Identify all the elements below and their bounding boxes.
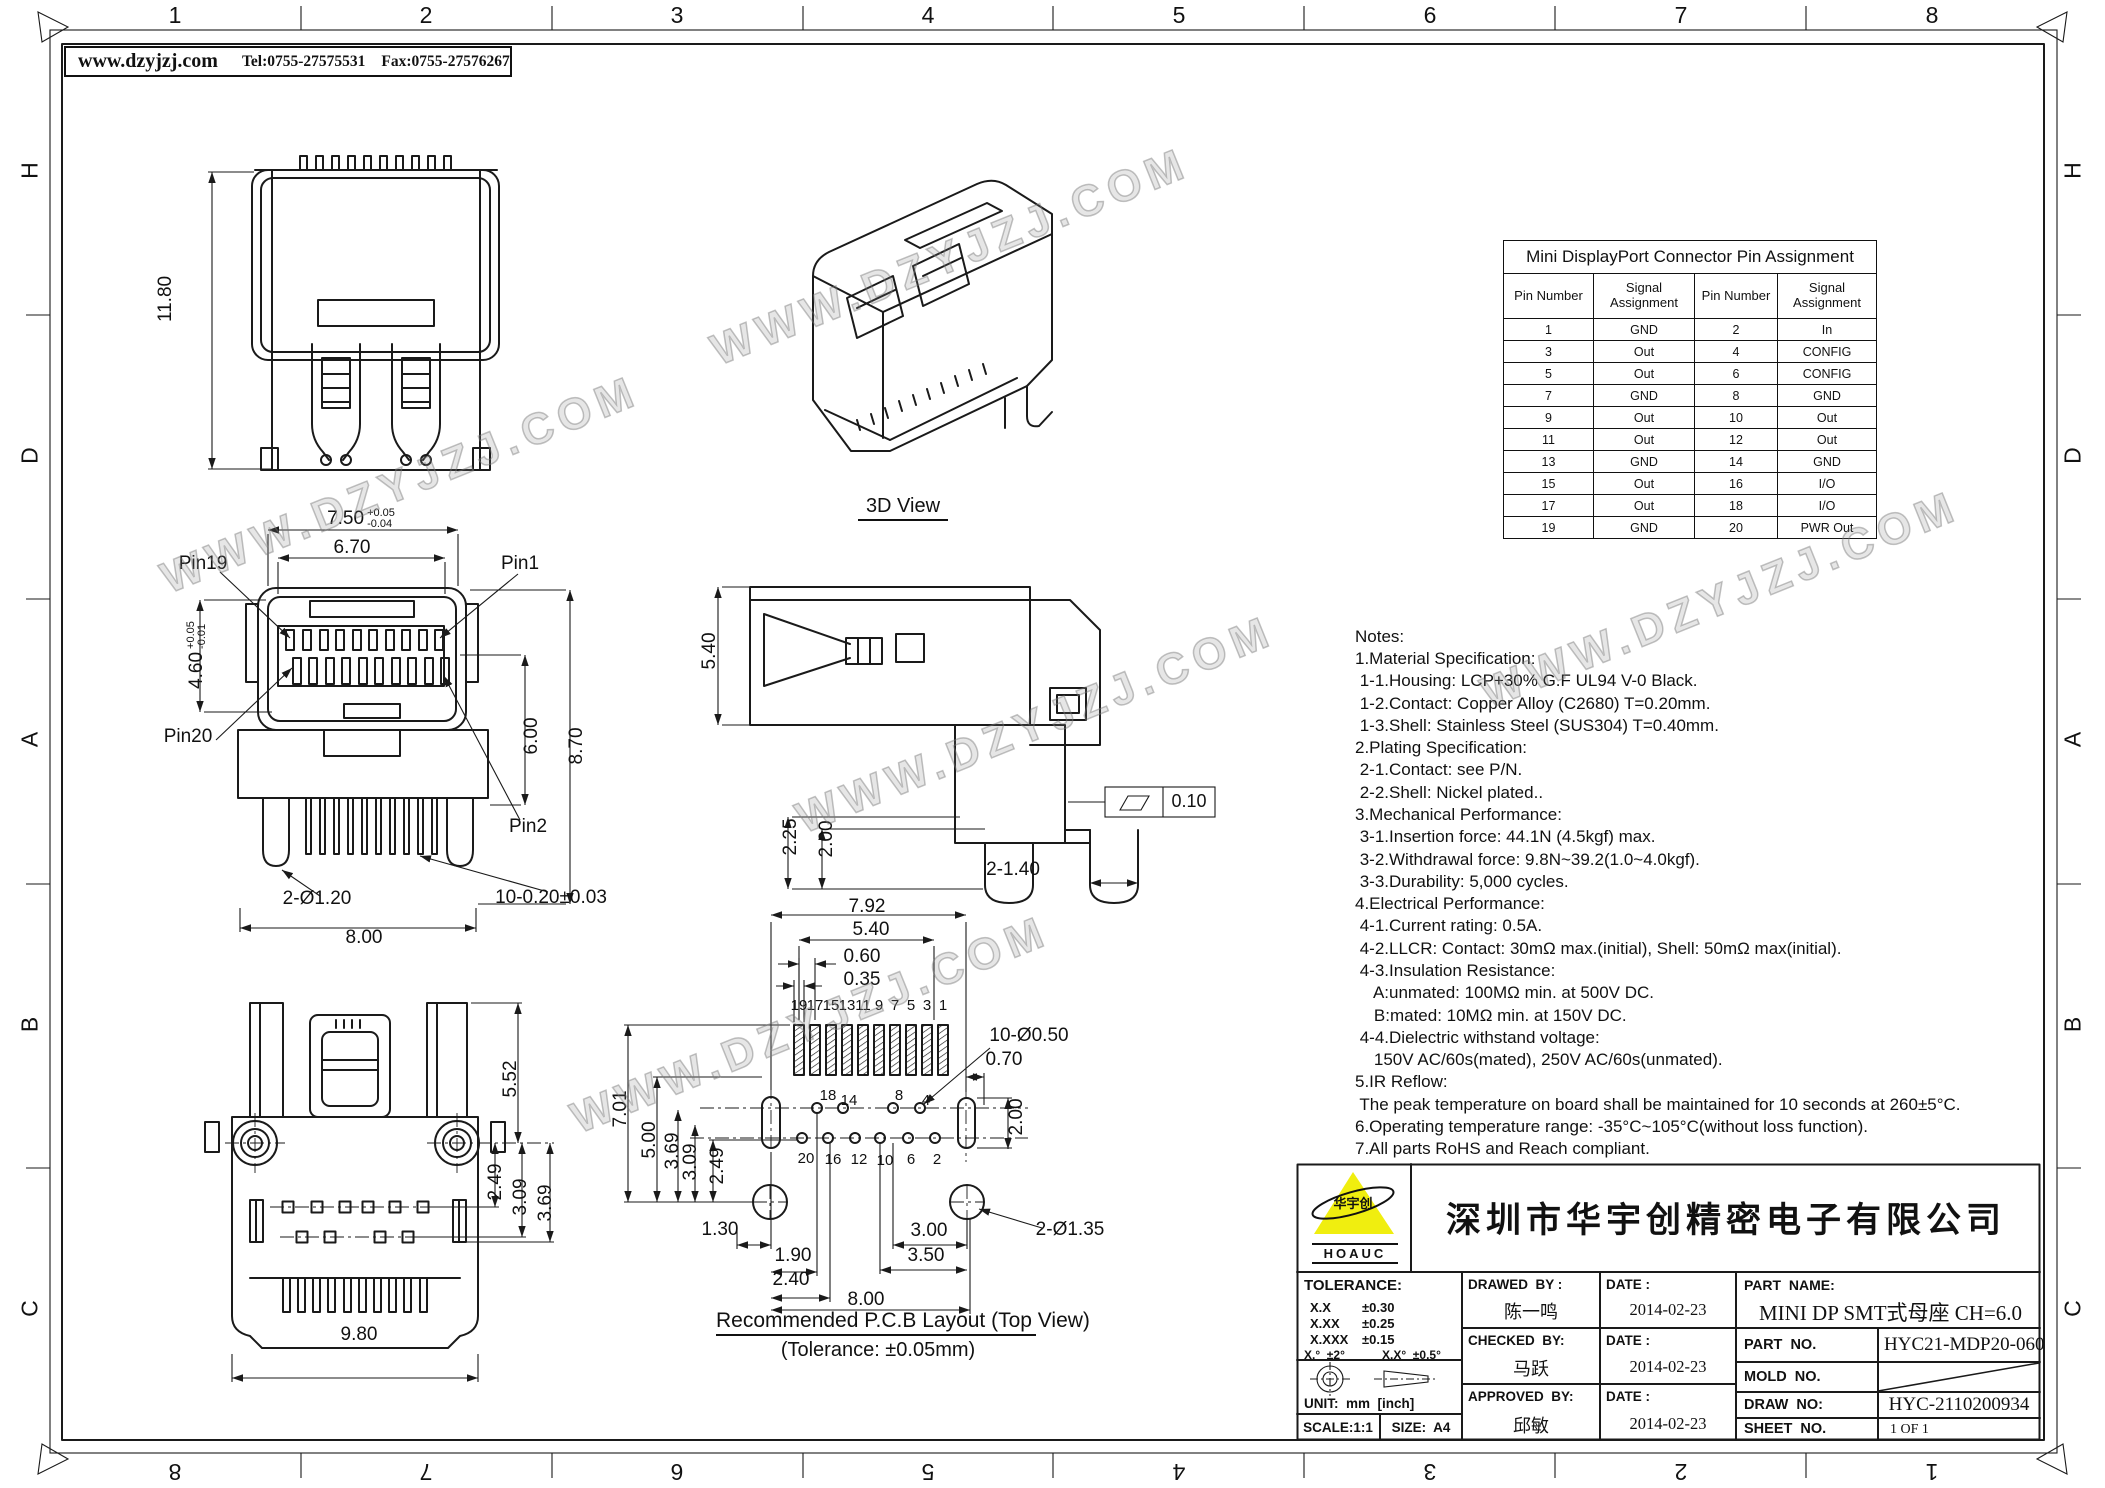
note-line: 3-3.Durability: 5,000 cycles. — [1355, 872, 1569, 892]
tol-angle: X.° ±2° — [1304, 1348, 1345, 1362]
sheet-no-label: SHEET NO. — [1744, 1421, 1826, 1437]
dim-side-feet: 2-1.40 — [968, 860, 1058, 880]
pcb-hole-number: 20 — [796, 1151, 816, 1167]
pcb-caption: Recommended P.C.B Layout (Top View) — [716, 1310, 1036, 1336]
drawed-by-name: 陈一鸣 — [1481, 1298, 1581, 1324]
cell: Out — [1594, 407, 1695, 429]
logo-cn-text: 华宇创 — [1333, 1196, 1372, 1211]
dim-pcb-h-a: 5.00 — [640, 1100, 660, 1180]
note-line: 3-2.Withdrawal force: 9.8N~39.2(1.0~4.0k… — [1355, 850, 1700, 870]
grid-col-label: 6 — [662, 1458, 692, 1485]
note-line: B:mated: 10MΩ min. at 150V DC. — [1355, 1006, 1627, 1026]
part-name-label: PART NAME: — [1744, 1277, 1835, 1293]
cell: GND — [1594, 319, 1695, 341]
cell: CONFIG — [1778, 363, 1877, 385]
note-line: 4.Electrical Performance: — [1355, 894, 1545, 914]
pin-table-header: Pin Number — [1695, 274, 1778, 319]
dim-front-body-height: 8.70 — [567, 706, 587, 786]
dim-bottom-top-height: 5.52 — [501, 1039, 521, 1119]
fax-text: Fax:0755-27576267 — [381, 53, 509, 71]
grid-row-label: C — [2060, 1294, 2087, 1324]
draw-no-value: HYC-2110200934 — [1884, 1394, 2034, 1416]
cell: 1 — [1504, 319, 1594, 341]
pin20-label: Pin20 — [158, 727, 218, 747]
tel-text: Tel:0755-27575531 — [242, 53, 365, 71]
dim-bottom-width: 9.80 — [329, 1325, 389, 1345]
pcb-hole-number: 12 — [849, 1152, 869, 1168]
note-line: 4-4.Dielectric withstand voltage: — [1355, 1028, 1600, 1048]
pin-table-header: Signal Assignment — [1778, 274, 1877, 319]
cell: Out — [1594, 341, 1695, 363]
dim-bottom-p1: 2.49 — [486, 1142, 506, 1222]
cell: 17 — [1504, 495, 1594, 517]
cell: 13 — [1504, 451, 1594, 473]
dim-pcb-b1: 1.30 — [690, 1220, 750, 1240]
iso-view-drawing — [755, 148, 1100, 493]
grid-col-label: 8 — [1917, 2, 1947, 29]
drawed-date: 2014-02-23 — [1608, 1300, 1728, 1320]
note-line: 1-3.Shell: Stainless Steel (SUS304) T=0.… — [1355, 716, 1719, 736]
tol-label: X.XX — [1310, 1316, 1340, 1331]
contact-info-box: www.dzyjzj.com Tel:0755-27575531 Fax:075… — [64, 46, 512, 77]
dim-front-width-outer: 7.50+0.05-0.04 — [306, 508, 416, 530]
dim-pcb-h-total: 7.01 — [611, 1069, 631, 1149]
cell: 19 — [1504, 517, 1594, 539]
note-line: 4-3.Insulation Resistance: — [1355, 961, 1555, 981]
cell: Out — [1594, 473, 1695, 495]
draw-no-label: DRAW NO: — [1744, 1397, 1823, 1413]
part-no-value: HYC21-MDP20-060 — [1884, 1334, 2034, 1356]
dim-side-leg-a: 2.25 — [781, 797, 801, 877]
note-line: 2-1.Contact: see P/N. — [1355, 760, 1522, 780]
scale-label: SCALE:1:1 — [1300, 1420, 1376, 1435]
dim-pcb-holes: 10-Ø0.50 — [969, 1026, 1089, 1046]
note-line: 150V AC/60s(mated), 250V AC/60s(unmated)… — [1355, 1050, 1723, 1070]
dim-pcb-pitch: 0.60 — [832, 947, 892, 967]
table-row: 11Out12Out — [1504, 429, 1877, 451]
tolerance-title: TOLERANCE: — [1304, 1277, 1402, 1294]
note-line: 2-2.Shell: Nickel plated.. — [1355, 783, 1543, 803]
dim-pcb-pads-width: 7.92 — [837, 897, 897, 917]
rear-view-drawing — [150, 92, 570, 492]
pin-table-title: Mini DisplayPort Connector Pin Assignmen… — [1504, 241, 1877, 274]
drawed-by-label: DRAWED BY : — [1468, 1277, 1562, 1292]
pin-table-header: Pin Number — [1504, 274, 1594, 319]
table-row: 13GND14GND — [1504, 451, 1877, 473]
website-text: www.dzyjzj.com — [78, 50, 218, 73]
cell: GND — [1594, 385, 1695, 407]
dim-pcb-inner-width: 5.40 — [841, 920, 901, 940]
cell: 3 — [1504, 341, 1594, 363]
pin19-label: Pin19 — [173, 554, 233, 574]
grid-col-label: 1 — [160, 2, 190, 29]
pcb-hole-number: 10 — [875, 1153, 895, 1169]
dim-pcb-pad-width: 0.35 — [832, 970, 892, 990]
pin-table-header: Signal Assignment — [1594, 274, 1695, 319]
table-row: 7GND8GND — [1504, 385, 1877, 407]
note-line: 1.Material Specification: — [1355, 649, 1535, 669]
grid-col-label: 8 — [160, 1458, 190, 1485]
table-row: 5Out6CONFIG — [1504, 363, 1877, 385]
tol-angle: X.X° ±0.5° — [1382, 1348, 1441, 1362]
cell: 6 — [1695, 363, 1778, 385]
dim-side-height: 5.40 — [700, 611, 720, 691]
company-logo: 华宇创 — [1306, 1170, 1401, 1242]
dim-pcb-slot-height: 2.00 — [1007, 1077, 1027, 1157]
table-row: 3Out4CONFIG — [1504, 341, 1877, 363]
cell: Out — [1594, 363, 1695, 385]
grid-col-label: 4 — [913, 2, 943, 29]
note-line: 1-1.Housing: LCP+30% G.F UL94 V-0 Black. — [1355, 671, 1698, 691]
cell: Out — [1594, 495, 1695, 517]
table-row: 19GND20PWR Out — [1504, 517, 1877, 539]
grid-col-label: 3 — [1415, 1458, 1445, 1485]
cell: 11 — [1504, 429, 1594, 451]
grid-col-label: 7 — [411, 1458, 441, 1485]
table-row: 17Out18I/O — [1504, 495, 1877, 517]
dim-pcb-b2: 1.90 — [763, 1246, 823, 1266]
note-line: 7.All parts RoHS and Reach compliant. — [1355, 1139, 1650, 1159]
grid-row-label: A — [17, 725, 44, 755]
drawing-sheet: 1 2 3 4 5 6 7 8 8 7 6 5 4 3 2 1 H D A B … — [0, 0, 2105, 1488]
cell: 5 — [1504, 363, 1594, 385]
dim-pcb-b6: 8.00 — [836, 1290, 896, 1310]
cell: I/O — [1778, 473, 1877, 495]
dim-bottom-p3: 3.69 — [536, 1163, 556, 1243]
cell: Out — [1594, 429, 1695, 451]
cell: I/O — [1778, 495, 1877, 517]
dim-front-width-inner: 6.70 — [322, 538, 382, 558]
cell: 4 — [1695, 341, 1778, 363]
note-line: 4-1.Current rating: 0.5A. — [1355, 916, 1542, 936]
date-label: DATE : — [1606, 1389, 1650, 1404]
side-view-drawing — [700, 540, 1220, 910]
pcb-hole-number: 14 — [839, 1093, 859, 1109]
cell: CONFIG — [1778, 341, 1877, 363]
dim-pcb-h-c: 3.09 — [681, 1122, 701, 1202]
table-row: 9Out10Out — [1504, 407, 1877, 429]
tol-label: X.X — [1310, 1300, 1331, 1315]
grid-col-label: 7 — [1666, 2, 1696, 29]
pcb-hole-number: 8 — [889, 1088, 909, 1104]
dim-bottom-p2: 3.09 — [511, 1157, 531, 1237]
flatness-icon — [1120, 796, 1149, 810]
date-label: DATE : — [1606, 1277, 1650, 1292]
cell: 15 — [1504, 473, 1594, 495]
approved-date: 2014-02-23 — [1608, 1414, 1728, 1434]
dim-front-inner-height: 6.00 — [522, 696, 542, 776]
cell: 14 — [1695, 451, 1778, 473]
grid-row-label: H — [17, 156, 44, 186]
grid-row-label: D — [17, 441, 44, 471]
tol-value: ±0.30 — [1362, 1300, 1394, 1315]
pcb-hole-number: 18 — [818, 1088, 838, 1104]
dim-rear-height: 11.80 — [156, 259, 176, 339]
dim-pcb-h-d: 2.49 — [708, 1126, 728, 1206]
dim-side-leg-b: 2.00 — [817, 799, 837, 879]
sheet-no-value: 1 OF 1 — [1890, 1422, 1929, 1438]
grid-row-label: D — [2060, 441, 2087, 471]
pin1-label: Pin1 — [495, 554, 545, 574]
checked-date: 2014-02-23 — [1608, 1357, 1728, 1377]
cell: GND — [1594, 451, 1695, 473]
cell: PWR Out — [1778, 517, 1877, 539]
grid-col-label: 5 — [913, 1458, 943, 1485]
note-line: 2.Plating Specification: — [1355, 738, 1527, 758]
tol-value: ±0.15 — [1362, 1332, 1394, 1347]
grid-col-label: 4 — [1164, 1458, 1194, 1485]
pcb-tolerance-note: (Tolerance: ±0.05mm) — [778, 1340, 978, 1361]
note-line: Notes: — [1355, 627, 1404, 647]
approved-by-label: APPROVED BY: — [1468, 1389, 1574, 1404]
pcb-hole-number: 16 — [823, 1152, 843, 1168]
dim-front-legs: 2-Ø1.20 — [272, 889, 362, 909]
grid-row-label: A — [2060, 725, 2087, 755]
cell: 7 — [1504, 385, 1594, 407]
pin-assignment-table: Mini DisplayPort Connector Pin Assignmen… — [1503, 240, 1877, 539]
tol-label: X.XXX — [1310, 1332, 1348, 1347]
dim-front-pins: 10-0.20±0.03 — [486, 888, 616, 908]
grid-row-label: H — [2060, 156, 2087, 186]
table-row: 15Out16I/O — [1504, 473, 1877, 495]
grid-row-label: B — [17, 1010, 44, 1040]
note-line: 3.Mechanical Performance: — [1355, 805, 1562, 825]
note-line: 4-2.LLCR: Contact: 30mΩ max.(initial), S… — [1355, 939, 1841, 959]
grid-col-label: 5 — [1164, 2, 1194, 29]
cell: 9 — [1504, 407, 1594, 429]
pcb-hole-number: 4 — [916, 1093, 936, 1109]
cell: In — [1778, 319, 1877, 341]
tol-value: ±0.25 — [1362, 1316, 1394, 1331]
cell: Out — [1778, 407, 1877, 429]
dim-pcb-b4: 3.00 — [899, 1221, 959, 1241]
grid-col-label: 3 — [662, 2, 692, 29]
company-name: 深圳市华宇创精密电子有限公司 — [1420, 1192, 2032, 1243]
cell: 12 — [1695, 429, 1778, 451]
dim-front-base-width: 8.00 — [334, 928, 394, 948]
dim-pcb-b3: 2.40 — [761, 1270, 821, 1290]
checked-by-label: CHECKED BY: — [1468, 1333, 1565, 1348]
grid-row-label: B — [2060, 1010, 2087, 1040]
cell: 10 — [1695, 407, 1778, 429]
note-line: 3-1.Insertion force: 44.1N (4.5kgf) max. — [1355, 827, 1655, 847]
cell: 2 — [1695, 319, 1778, 341]
dim-pcb-mounts: 2-Ø1.35 — [1020, 1220, 1120, 1240]
cell: 18 — [1695, 495, 1778, 517]
cell: GND — [1594, 517, 1695, 539]
pcb-hole-number: 6 — [901, 1152, 921, 1168]
logo-en-text: HOAUC — [1312, 1243, 1398, 1264]
date-label: DATE : — [1606, 1333, 1650, 1348]
grid-col-label: 6 — [1415, 2, 1445, 29]
cell: 16 — [1695, 473, 1778, 495]
checked-by-name: 马跃 — [1481, 1355, 1581, 1381]
pcb-hole-number: 2 — [927, 1152, 947, 1168]
dim-front-opening-height: 4.60+0.05-0.01 — [186, 607, 208, 703]
dim-pcb-b5: 3.50 — [896, 1246, 956, 1266]
part-no-label: PART NO. — [1744, 1337, 1816, 1353]
unit-label: UNIT: mm [inch] — [1304, 1396, 1414, 1411]
flatness-value: 0.10 — [1164, 792, 1214, 811]
pin2-label: Pin2 — [503, 817, 553, 837]
note-line: The peak temperature on board shall be m… — [1355, 1095, 1961, 1115]
cell: GND — [1778, 385, 1877, 407]
projection-symbol-icon — [1306, 1362, 1456, 1396]
size-label: SIZE: A4 — [1383, 1420, 1459, 1435]
note-line: A:unmated: 100MΩ min. at 500V DC. — [1355, 983, 1654, 1003]
cell: GND — [1778, 451, 1877, 473]
grid-row-label: C — [17, 1294, 44, 1324]
cell: 8 — [1695, 385, 1778, 407]
grid-col-label: 2 — [1666, 1458, 1696, 1485]
pcb-pad-number: 1 — [933, 998, 953, 1014]
note-line: 1-2.Contact: Copper Alloy (C2680) T=0.20… — [1355, 694, 1710, 714]
approved-by-name: 邱敏 — [1481, 1412, 1581, 1438]
cell: 20 — [1695, 517, 1778, 539]
dim-pcb-offset: 0.70 — [974, 1050, 1034, 1070]
table-row: 1GND2In — [1504, 319, 1877, 341]
iso-view-label: 3D View — [858, 496, 948, 521]
note-line: 6.Operating temperature range: -35°C~105… — [1355, 1117, 1868, 1137]
note-line: 5.IR Reflow: — [1355, 1072, 1448, 1092]
mold-no-label: MOLD NO. — [1744, 1369, 1821, 1385]
grid-col-label: 1 — [1917, 1458, 1947, 1485]
grid-col-label: 2 — [411, 2, 441, 29]
cell: Out — [1778, 429, 1877, 451]
part-name-value: MINI DP SMT式母座 CH=6.0 — [1748, 1297, 2033, 1327]
